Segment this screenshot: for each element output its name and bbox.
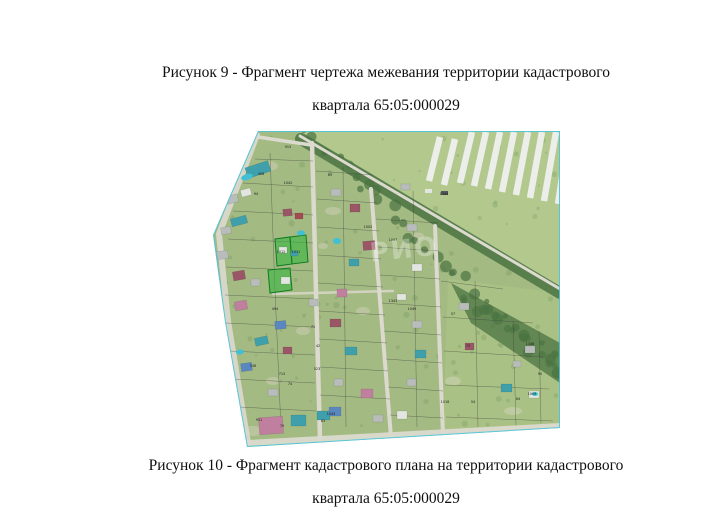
svg-text:71: 71: [311, 325, 315, 329]
svg-text:1002: 1002: [364, 225, 373, 229]
document-page: Рисунок 9 - Фрагмент чертежа межевания т…: [0, 0, 706, 512]
svg-text:79: 79: [280, 424, 284, 428]
svg-text:1348: 1348: [526, 342, 535, 346]
svg-text:57: 57: [451, 312, 455, 316]
svg-text:74: 74: [288, 382, 292, 386]
svg-text:494: 494: [272, 307, 278, 311]
figure-10-caption-line-2: квартала 65:05:000029: [66, 482, 706, 512]
svg-text:408: 408: [258, 172, 264, 176]
figure-image-cadastral-map: 9154081042699410021047134410121011494714…: [213, 131, 560, 452]
figure-10-caption: Рисунок 10 - Фрагмент кадастрового плана…: [66, 449, 706, 512]
svg-text:1343: 1343: [389, 299, 398, 303]
figure-9-caption-line-2: квартала 65:05:000029: [66, 89, 706, 122]
svg-text:1011: 1011: [292, 250, 301, 254]
figure-9-caption: Рисунок 9 - Фрагмент чертежа межевания т…: [66, 56, 706, 122]
svg-text:64: 64: [516, 397, 520, 401]
svg-text:1018: 1018: [441, 400, 450, 404]
figure-10-caption-line-1: Рисунок 10 - Фрагмент кадастрового плана…: [66, 449, 706, 482]
svg-text:73: 73: [466, 344, 470, 348]
svg-text:1012: 1012: [277, 250, 286, 254]
svg-text:523: 523: [314, 367, 320, 371]
svg-text:90: 90: [538, 372, 542, 376]
svg-text:715: 715: [279, 372, 285, 376]
svg-text:1042: 1042: [284, 181, 293, 185]
svg-text:538: 538: [250, 364, 256, 368]
svg-text:54: 54: [471, 400, 475, 404]
cadastral-map-svg: 9154081042699410021047134410121011494714…: [213, 131, 560, 452]
svg-text:94: 94: [254, 192, 258, 196]
svg-text:83: 83: [321, 419, 325, 423]
svg-text:1344: 1344: [440, 192, 449, 196]
svg-text:1049: 1049: [408, 307, 417, 311]
svg-text:1009: 1009: [528, 392, 537, 396]
svg-text:1043: 1043: [327, 412, 336, 416]
svg-text:42: 42: [316, 344, 320, 348]
svg-text:69: 69: [328, 173, 332, 177]
svg-text:915: 915: [285, 145, 291, 149]
figure-9-caption-line-1: Рисунок 9 - Фрагмент чертежа межевания т…: [66, 56, 706, 89]
svg-text:931: 931: [256, 418, 262, 422]
